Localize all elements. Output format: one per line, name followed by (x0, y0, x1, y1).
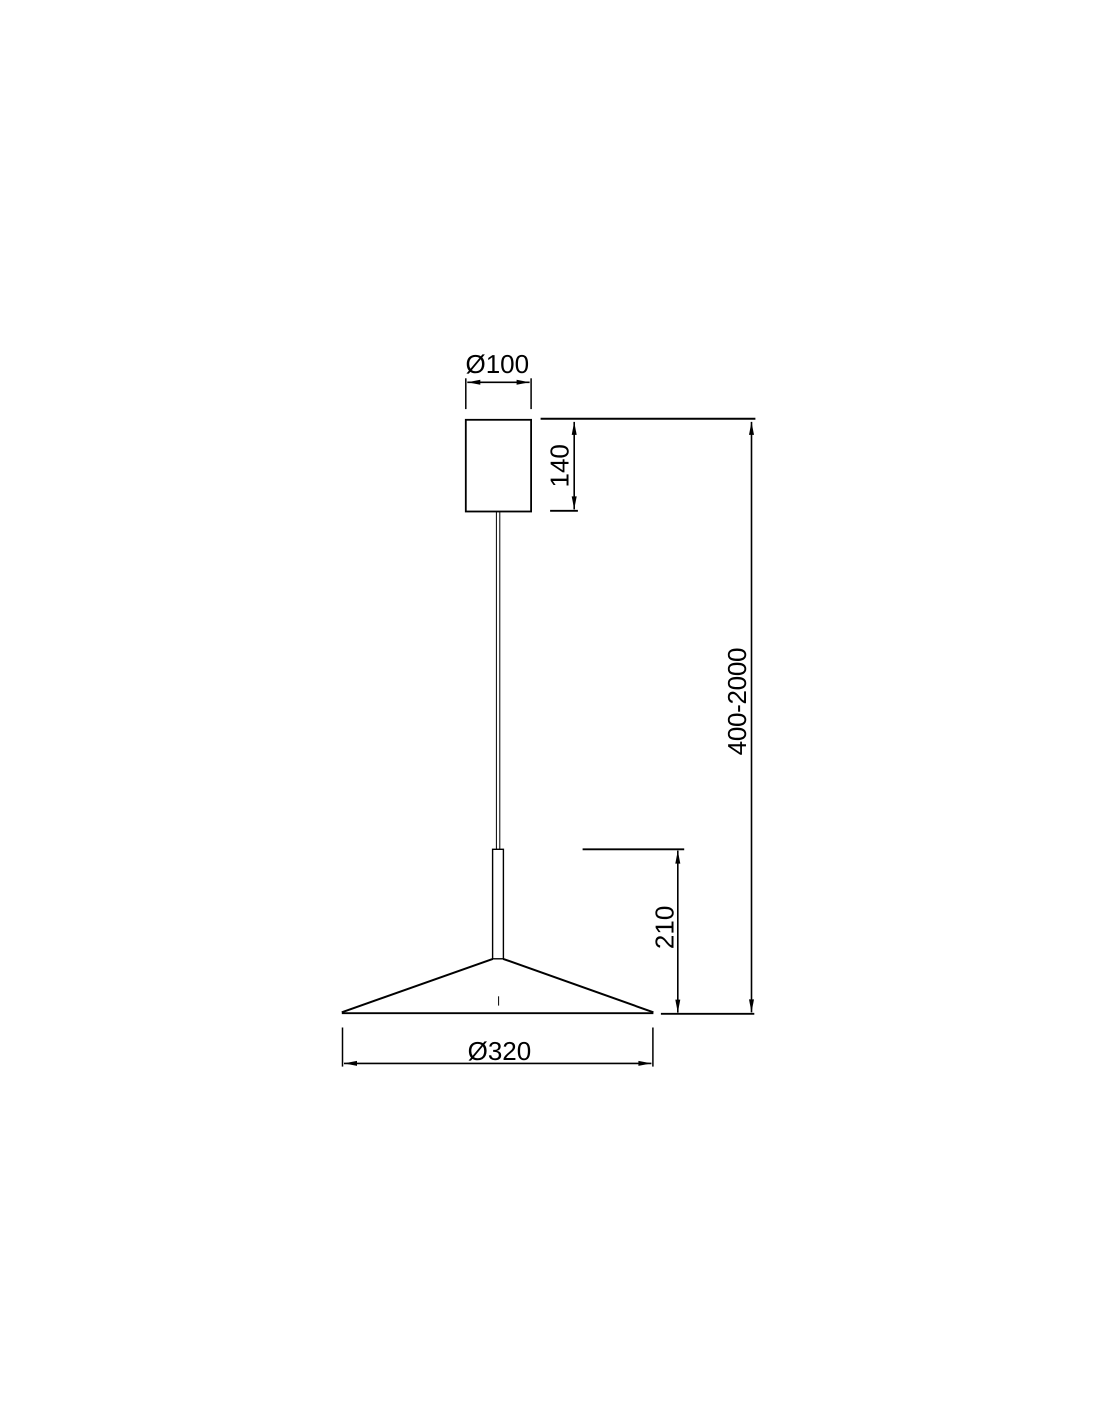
svg-text:Ø320: Ø320 (468, 1036, 532, 1066)
svg-text:140: 140 (545, 444, 575, 487)
svg-text:Ø100: Ø100 (465, 349, 529, 379)
svg-text:210: 210 (649, 906, 679, 949)
svg-text:400-2000: 400-2000 (722, 648, 752, 755)
